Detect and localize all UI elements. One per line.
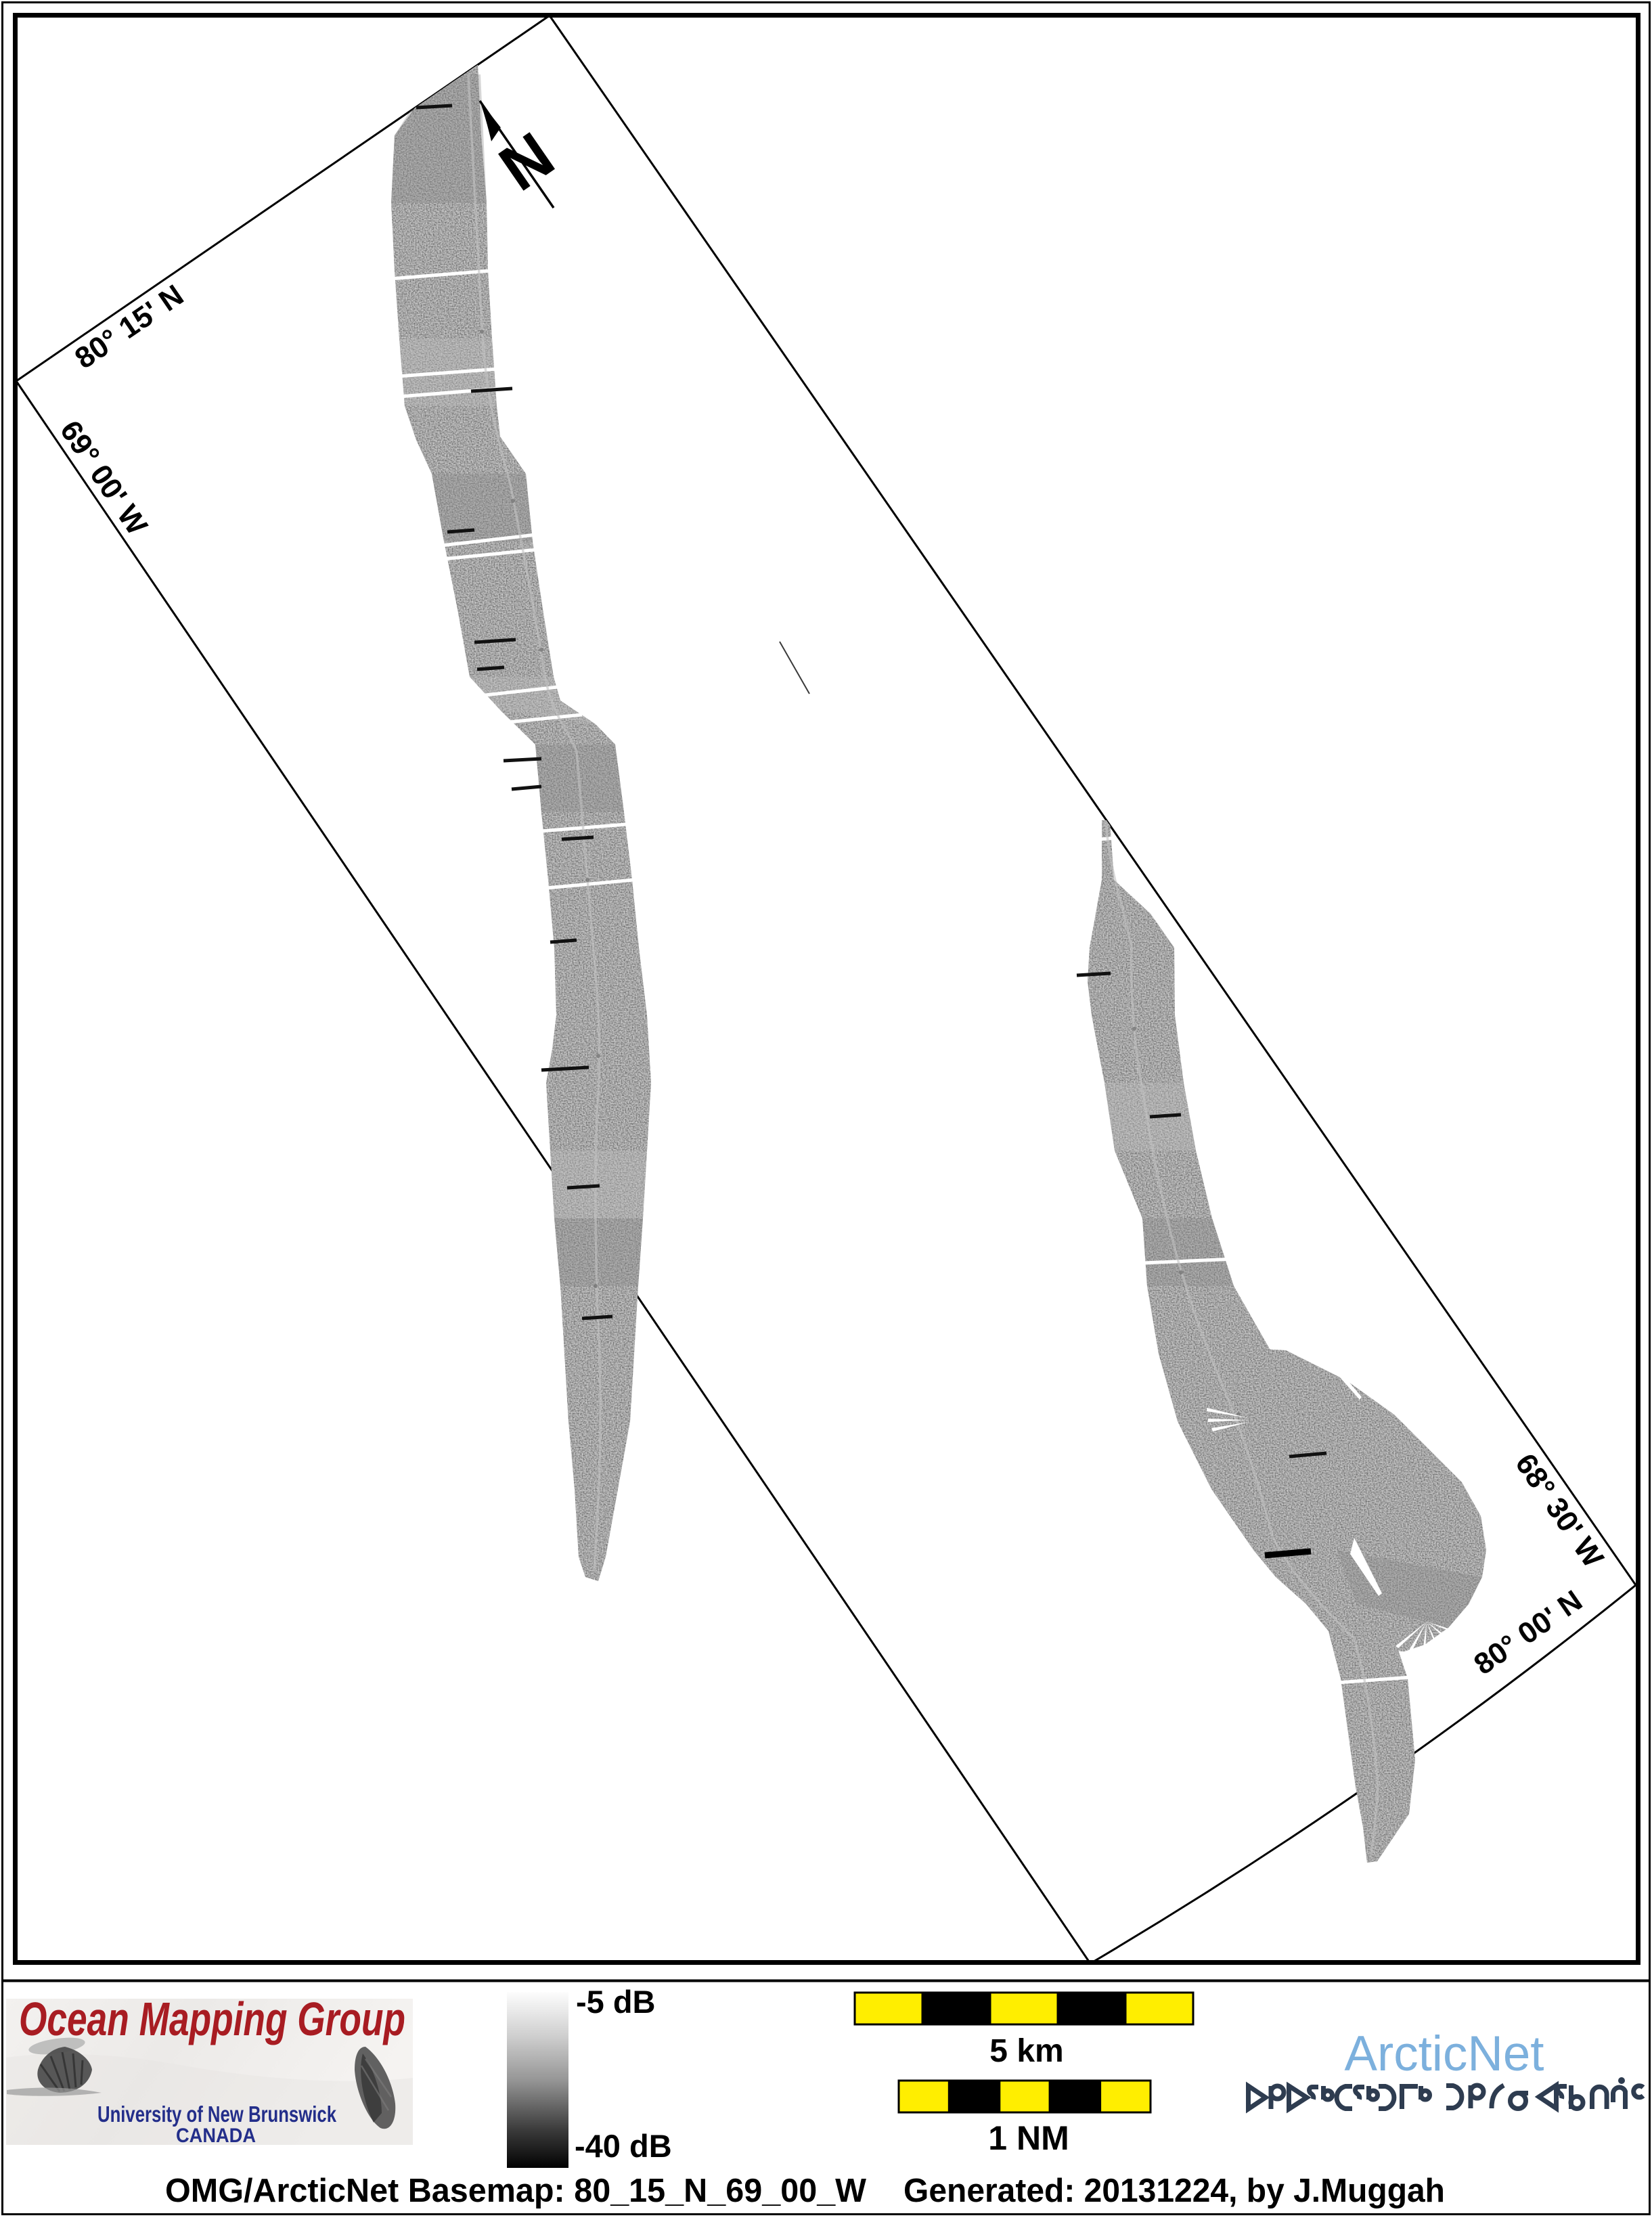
svg-text:Generated: 20131224, by J.Mugg: Generated: 20131224, by J.Muggah [903,2173,1445,2209]
svg-text:Ocean Mapping Group: Ocean Mapping Group [19,1993,405,2045]
svg-text:5 km: 5 km [989,2033,1063,2069]
svg-text:N: N [487,118,566,204]
svg-text:80° 00' N: 80° 00' N [1468,1584,1588,1681]
svg-text:-5 dB: -5 dB [576,1984,656,2020]
svg-text:CANADA: CANADA [176,2125,256,2147]
svg-text:ArcticNet: ArcticNet [1345,2026,1544,2081]
svg-text:OMG/ArcticNet Basemap: 80_15_N: OMG/ArcticNet Basemap: 80_15_N_69_00_W [165,2173,867,2209]
svg-text:University of New Brunswick: University of New Brunswick [97,2102,336,2127]
svg-text:68° 30' W: 68° 30' W [1509,1448,1610,1574]
svg-text:-40 dB: -40 dB [575,2128,672,2164]
svg-text:1 NM: 1 NM [988,2119,1069,2157]
svg-text:69° 00' W: 69° 00' W [53,415,154,541]
svg-text:80° 15' N: 80° 15' N [69,278,189,375]
